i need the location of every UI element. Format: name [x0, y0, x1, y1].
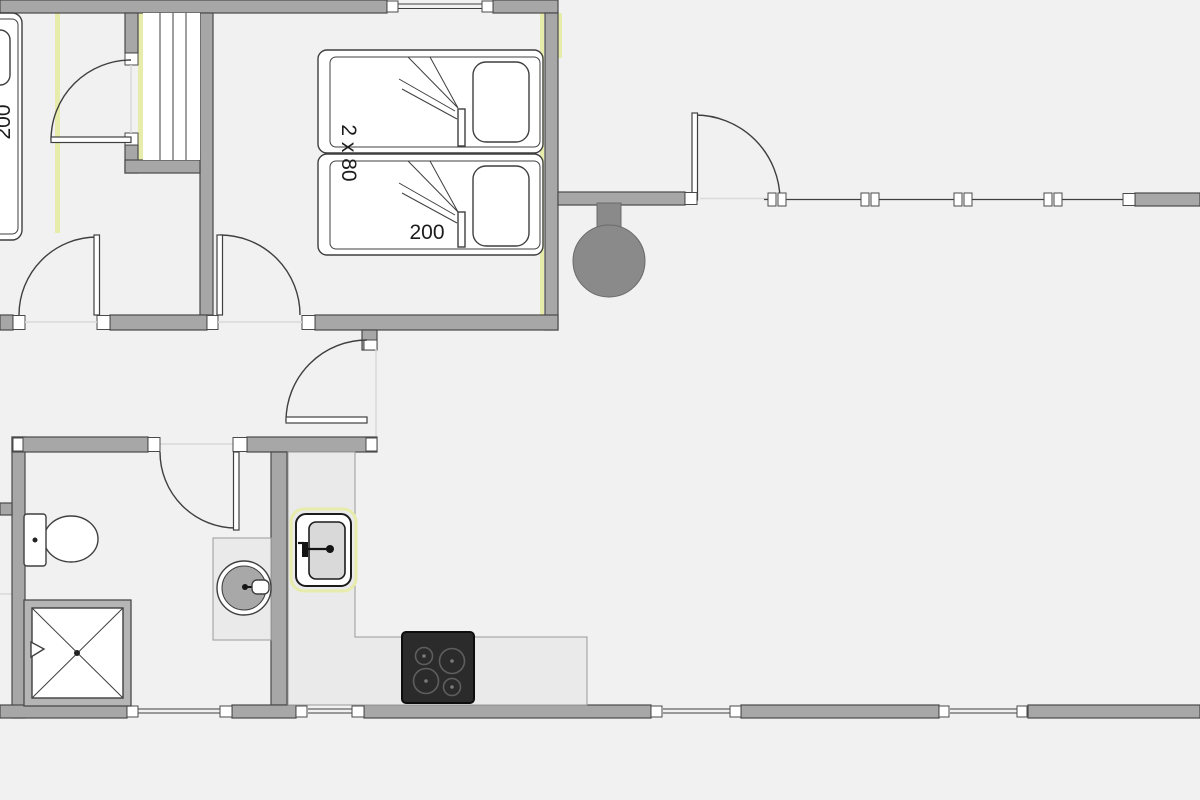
door-hall-living — [286, 340, 367, 423]
bottom-wall-seg2 — [110, 315, 207, 330]
outdoor-feature — [573, 203, 645, 297]
door-exterior-east — [692, 113, 780, 200]
kitchen — [288, 452, 587, 705]
bedroom-bed-length-label: 200 — [409, 221, 444, 244]
lower-top-wall-seg1 — [12, 437, 148, 452]
toilet-bowl — [44, 516, 98, 562]
bed-pillow — [473, 166, 529, 246]
jamb — [366, 438, 377, 451]
door-leaf — [51, 137, 131, 143]
window-cap — [352, 706, 364, 717]
window-cap — [651, 706, 662, 717]
top-wall-left — [0, 0, 387, 13]
window-cap — [387, 1, 398, 12]
jamb — [13, 438, 23, 451]
lower-top-wall-seg2 — [247, 437, 377, 452]
door-left-room-south — [19, 235, 100, 315]
door-swing-arc — [19, 237, 97, 315]
window-top-wall — [387, 1, 493, 12]
bed-duvet-bar — [458, 109, 465, 146]
jamb — [1123, 194, 1135, 206]
wardrobe — [143, 13, 200, 160]
door-leaf — [692, 113, 698, 200]
door-leaf — [286, 417, 367, 423]
south-wall-seg4 — [741, 705, 939, 718]
window-cap — [127, 706, 138, 717]
door-swing-arc — [51, 60, 131, 140]
window-cap — [730, 706, 741, 717]
left-edge-stub — [0, 503, 12, 515]
south-wall-seg5 — [1028, 705, 1200, 718]
bathroom-basin — [213, 538, 271, 640]
terrace-post — [950, 193, 976, 206]
wardrobe-interior — [143, 13, 200, 160]
door-bedroom — [217, 235, 300, 315]
basin-tap-dot — [242, 584, 248, 590]
window-cap — [220, 706, 232, 717]
door-leaf — [94, 235, 100, 315]
bedroom-right-wall — [545, 13, 558, 330]
shower-drain-dot — [74, 650, 80, 656]
bottom-wall-seg3 — [315, 315, 558, 330]
toilet-flush-dot — [33, 538, 38, 543]
door-swing-arc — [160, 452, 236, 528]
jamb — [302, 316, 315, 330]
window-glass-lines — [398, 4, 482, 9]
window-cap — [939, 706, 949, 717]
divider-wall — [200, 13, 213, 315]
lower-block-walls — [0, 437, 1200, 718]
jamb — [97, 316, 110, 330]
sink-tap-dot — [326, 545, 334, 553]
terrace-post — [1040, 193, 1066, 206]
bedroom-bed-width-label: 2 x 80 — [337, 124, 360, 181]
terrace-post — [764, 193, 790, 206]
door-bathroom — [160, 452, 239, 530]
door-swing-arc — [220, 235, 300, 315]
east-wall — [1135, 193, 1200, 206]
highlight-left-room — [55, 10, 60, 233]
jamb — [685, 193, 697, 205]
door-left-room-wardrobe — [51, 60, 131, 143]
entrance-east — [558, 192, 1200, 297]
left-room-bed: 200 — [0, 13, 22, 240]
window-cap — [1017, 706, 1027, 717]
south-wall-seg2 — [232, 705, 296, 718]
highlight-wardrobe — [138, 13, 143, 160]
jamb — [233, 438, 247, 452]
wardrobe-wall-upper — [125, 13, 138, 53]
bed-pillow — [0, 30, 10, 85]
kitchen-stove — [402, 632, 474, 703]
terrace-post — [857, 193, 883, 206]
door-leaf — [217, 235, 223, 315]
bath-kitchen-wall — [271, 452, 287, 705]
shower — [24, 600, 131, 706]
bath-left-wall — [12, 437, 25, 718]
window-cap — [296, 706, 307, 717]
wardrobe-bottom-bar — [125, 160, 200, 173]
bed-duvet-bar — [458, 212, 465, 247]
jamb — [13, 316, 25, 330]
top-wall-right — [493, 0, 558, 13]
kitchen-sink — [296, 514, 351, 586]
left-bed-label: 200 — [0, 104, 15, 139]
jamb — [125, 53, 138, 65]
door-leaf — [234, 452, 240, 530]
window-cap — [482, 1, 493, 12]
toilet — [24, 514, 98, 566]
door-swing-arc — [286, 340, 367, 421]
jamb — [364, 340, 377, 350]
outdoor-feature-circle — [573, 225, 645, 297]
jamb — [148, 438, 160, 452]
basin-tap — [252, 580, 269, 594]
south-wall-seg1 — [0, 705, 127, 718]
jamb — [207, 316, 218, 330]
south-wall-seg3 — [364, 705, 651, 718]
bed-pillow — [473, 62, 529, 142]
floorplan-canvas: 200 2 x 80 200 — [0, 0, 1200, 800]
door-swing-arc — [695, 115, 780, 200]
bottom-wall-seg1 — [0, 315, 13, 330]
